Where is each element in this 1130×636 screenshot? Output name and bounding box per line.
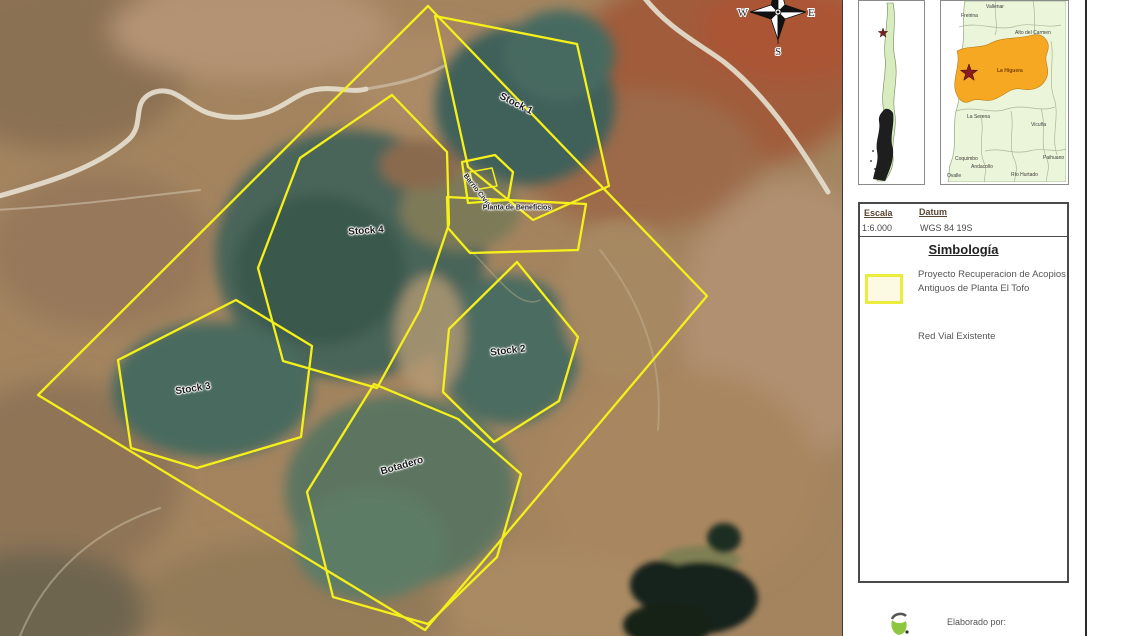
datum-label: Datum [919, 207, 947, 217]
map-sheet: W E S Stock 1 Stock 4 Stock 3 Stock 2 Bo… [0, 0, 1130, 636]
region-label-la-serena: La Serena [967, 115, 990, 120]
map-label-planta-beneficios: Planta de Beneficios [483, 205, 551, 212]
region-locator-inset: Vallenar Freirina Alto del Carmen La Hig… [940, 0, 1069, 185]
legend-item-project-label: Proyecto Recuperacion de Acopios Antiguo… [918, 268, 1070, 296]
legend-title: Simbología [860, 242, 1067, 257]
region-label-rio-hurtado: Río Hurtado [1011, 173, 1038, 178]
region-label-vicuna: Vicuña [1031, 123, 1046, 128]
satellite-map: W E S Stock 1 Stock 4 Stock 3 Stock 2 Bo… [0, 0, 843, 636]
compass-south-label: S [775, 46, 781, 58]
green-logo-icon [884, 610, 914, 636]
region-label-paihuano: Paihuano [1043, 156, 1064, 161]
region-label-coquimbo: Coquimbo [955, 157, 978, 162]
legend-divider [860, 236, 1067, 237]
region-label-vallenar: Vallenar [986, 5, 1004, 10]
credit-label: Elaborado por: [947, 617, 1006, 627]
escala-value: 1:6.000 [862, 223, 892, 233]
region-label-andacollo: Andacollo [971, 165, 993, 170]
sheet-frame-line [1085, 0, 1087, 636]
legend-item-roads-label: Red Vial Existente [918, 330, 1070, 344]
region-label-la-higuera: La Higuera [997, 69, 1023, 74]
satellite-map-graphic: W E S [0, 0, 843, 636]
region-label-alto-del-carmen: Alto del Carmen [1015, 31, 1051, 36]
compass-east-label: E [808, 7, 815, 19]
compass-west-label: W [738, 7, 749, 19]
chile-locator-graphic [859, 1, 922, 182]
project-area-swatch [865, 274, 903, 304]
chile-locator-inset [858, 0, 925, 185]
scale-legend-box: Escala 1:6.000 Datum WGS 84 19S Simbolog… [858, 202, 1069, 583]
escala-label: Escala [864, 208, 893, 218]
region-label-ovalle: Ovalle [947, 174, 961, 179]
region-label-freirina: Freirina [961, 14, 978, 19]
datum-value: WGS 84 19S [920, 223, 973, 233]
